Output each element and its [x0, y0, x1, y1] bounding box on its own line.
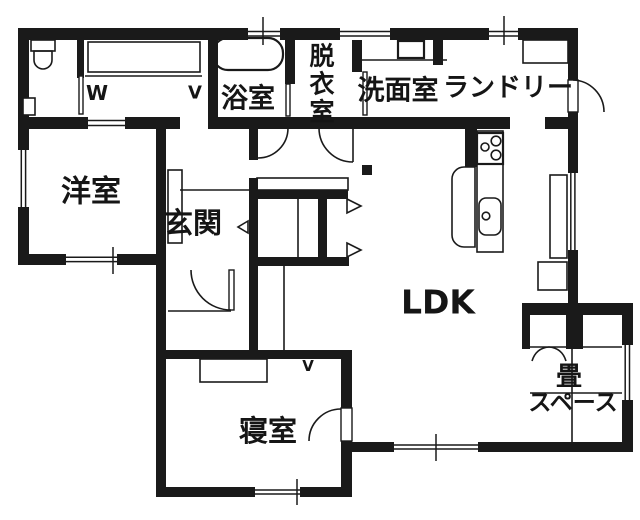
window-west-left — [18, 150, 29, 207]
label-tatami-1: 畳 — [556, 362, 582, 392]
wall-laundry-stub — [433, 40, 443, 65]
window-ldk-right — [568, 173, 578, 250]
wall-bedroom-right-a — [341, 350, 352, 408]
floorplan: 洋室 玄関 浴室 脱 衣 室 洗面室 ランドリー LDK 寝室 畳 スペース W… — [0, 0, 640, 520]
wall-mid-e — [545, 117, 568, 129]
label-dressing-1: 脱 — [309, 42, 334, 71]
wall-closet-bottom — [249, 257, 349, 266]
wall-storage-top — [522, 303, 633, 315]
window-washroom — [340, 28, 390, 40]
wall-bedroom-top — [156, 350, 352, 359]
window-tatami-right — [622, 345, 633, 400]
wall-bath-right — [285, 40, 295, 84]
wall-ldk-bottom — [343, 442, 633, 452]
wall-bedroom-bottom — [156, 487, 352, 497]
wall-kitchen — [465, 129, 477, 167]
label-entrance: 玄関 — [164, 206, 222, 240]
wall-corridor-stub — [249, 128, 258, 160]
label-tatami-2: スペース — [528, 390, 617, 416]
wall-mid-a — [18, 117, 88, 129]
label-bathroom: 浴室 — [221, 83, 275, 115]
mark-hanger-v: V — [188, 83, 202, 104]
wall-closet-top — [257, 190, 348, 199]
label-western-room: 洋室 — [61, 175, 121, 210]
wall-mid-d — [353, 117, 510, 129]
wall-storage-divider — [566, 315, 583, 349]
label-washroom: 洗面室 — [358, 75, 439, 107]
bathroom-door — [286, 84, 290, 116]
wall-west-vertical — [156, 117, 166, 497]
wall-right-exterior-b — [568, 112, 578, 173]
label-dressing-3: 室 — [309, 98, 334, 127]
toilet-door — [79, 76, 83, 114]
wall-left-exterior — [18, 28, 29, 265]
wall-storage-left — [522, 315, 530, 349]
mark-hanger-w: W — [86, 81, 108, 105]
mark-bedroom-hanger: V — [302, 357, 314, 375]
wall-toilet-divider — [77, 40, 84, 78]
label-laundry: ランドリー — [443, 73, 573, 103]
label-ldk: LDK — [401, 283, 476, 322]
toilet-paper-holder — [23, 98, 35, 115]
wall-right-exterior-c — [568, 250, 578, 303]
wall-closet-divider — [318, 199, 327, 257]
wall-mid-b — [125, 117, 180, 129]
pillar — [362, 165, 372, 175]
wall-dressing-right — [352, 40, 362, 72]
label-dressing-2: 衣 — [309, 70, 334, 99]
label-bedroom: 寝室 — [239, 414, 297, 448]
